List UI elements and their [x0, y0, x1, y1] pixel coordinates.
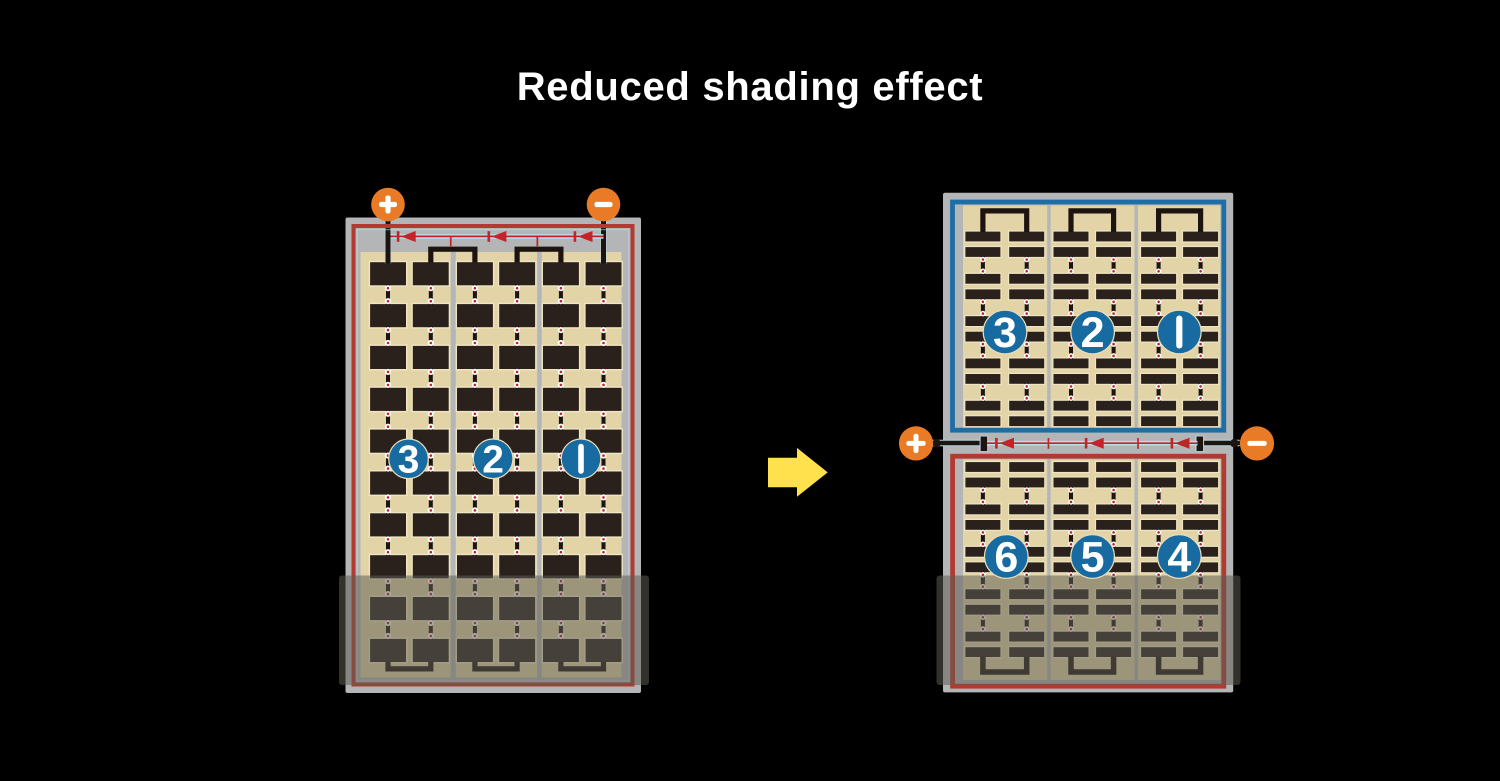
svg-text:5: 5 — [1081, 534, 1105, 582]
svg-text:6: 6 — [994, 534, 1018, 582]
svg-text:2: 2 — [1081, 309, 1105, 357]
svg-text:3: 3 — [398, 439, 420, 482]
svg-text:4: 4 — [1167, 534, 1191, 582]
svg-text:2: 2 — [482, 439, 504, 482]
svg-text:3: 3 — [993, 309, 1017, 357]
